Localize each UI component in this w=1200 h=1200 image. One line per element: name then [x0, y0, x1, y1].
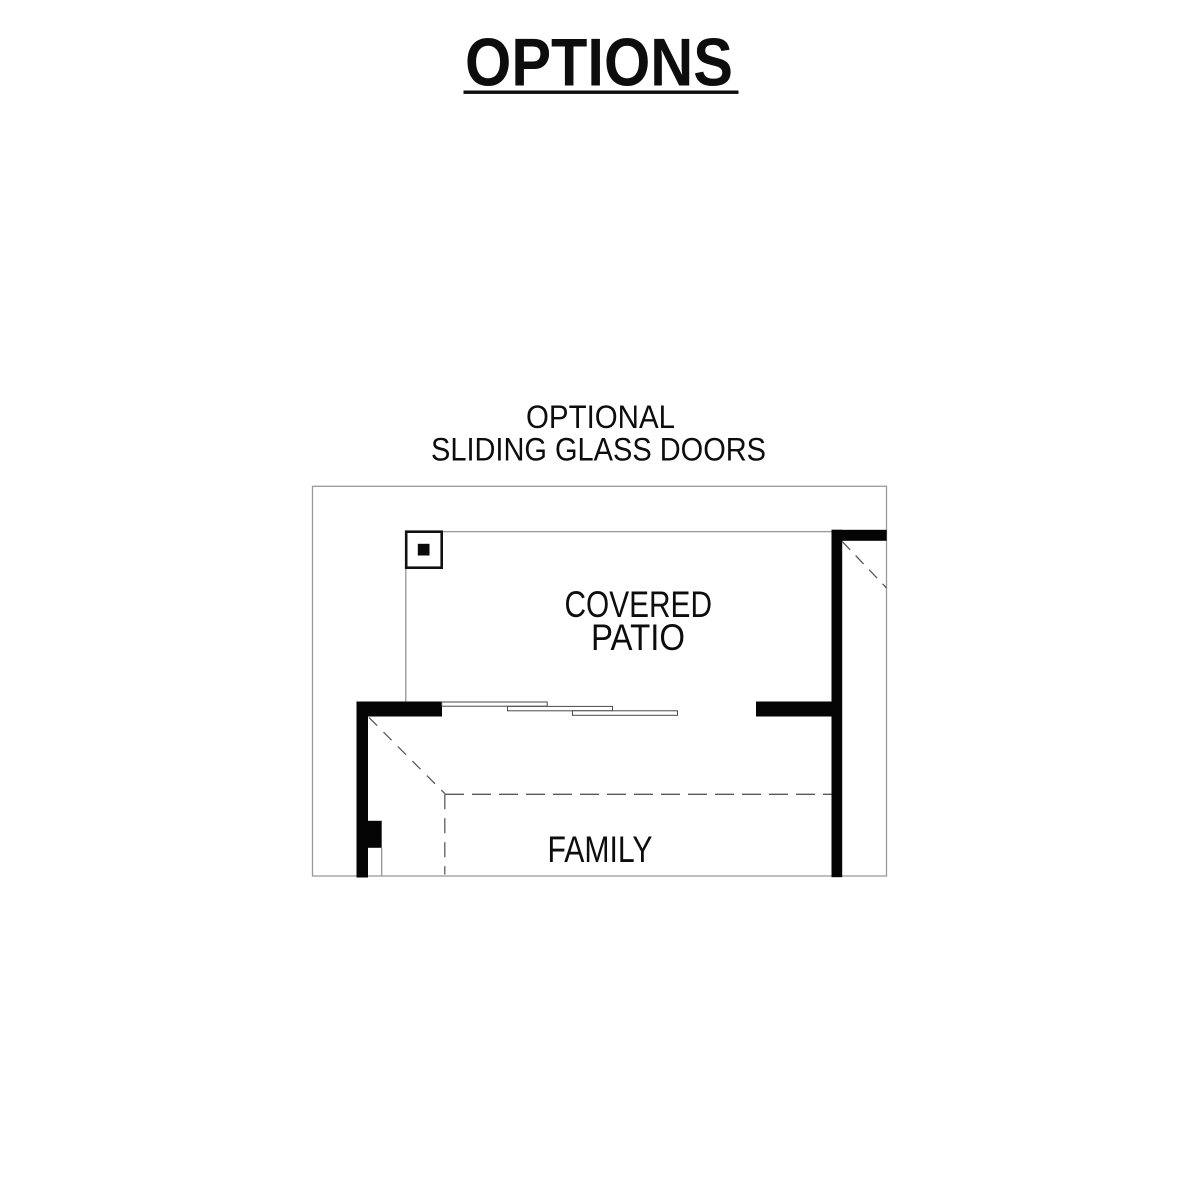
svg-text:OPTIONAL: OPTIONAL [526, 399, 675, 435]
svg-text:FAMILY: FAMILY [548, 829, 653, 870]
svg-text:PATIO: PATIO [591, 617, 685, 658]
svg-text:SLIDING GLASS DOORS: SLIDING GLASS DOORS [431, 432, 766, 468]
svg-text:OPTIONS: OPTIONS [465, 25, 733, 101]
